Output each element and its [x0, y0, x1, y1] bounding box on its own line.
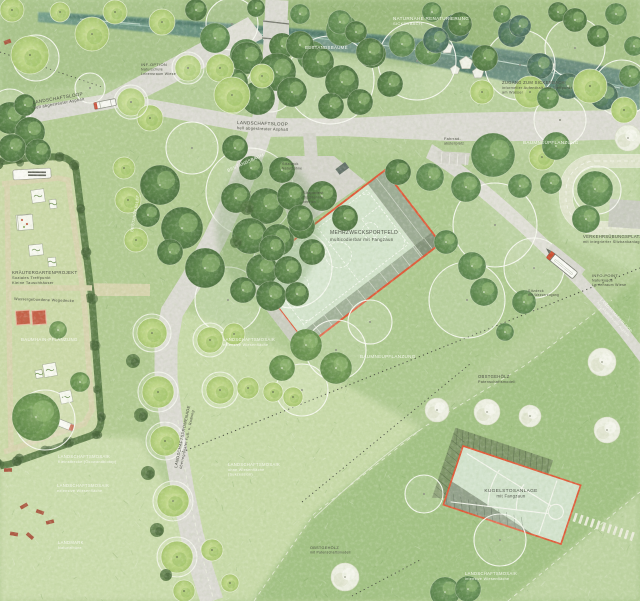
svg-text:Lernenraum Wiese: Lernenraum Wiese [592, 283, 626, 287]
svg-text:Naturkunde: Naturkunde [592, 279, 613, 283]
svg-text:BAUMNEUPFLANZUNG: BAUMNEUPFLANZUNG [360, 354, 416, 359]
svg-text:intensive Wiesenfläche: intensive Wiesenfläche [465, 577, 509, 581]
svg-text:SICKERBACH: SICKERBACH [393, 21, 422, 26]
svg-text:OBSTGEHÖLZ: OBSTGEHÖLZ [478, 374, 510, 379]
svg-text:Sitzdeck: Sitzdeck [282, 162, 299, 166]
svg-text:LANDSCHAFTSMOSAIK: LANDSCHAFTSMOSAIK [465, 571, 517, 576]
svg-text:mit integrierter Sitzbankanlag: mit integrierter Sitzbankanlage [583, 240, 640, 244]
svg-text:LANDSCHAFTSMOSAIK: LANDSCHAFTSMOSAIK [58, 454, 110, 459]
svg-text:Kleinstbecke (Ökowandbiotop): Kleinstbecke (Ökowandbiotop) [58, 460, 116, 464]
svg-text:BAUMNEUPFLANZUNG: BAUMNEUPFLANZUNG [523, 140, 579, 145]
svg-text:Kleine Tauschhäuser: Kleine Tauschhäuser [12, 280, 54, 285]
svg-text:BESTANDSBÄUME: BESTANDSBÄUME [305, 45, 348, 50]
svg-text:MEHRZWECKSPORTFELD: MEHRZWECKSPORTFELD [330, 230, 398, 236]
svg-text:INFO-POINT: INFO-POINT [592, 273, 618, 278]
svg-text:extensive Wiesenfläche: extensive Wiesenfläche [223, 343, 268, 347]
svg-text:informeller Aufenthalt und Tre: informeller Aufenthalt und Treffpunkt [502, 86, 572, 90]
svg-text:Tischtennis-: Tischtennis- [303, 195, 324, 199]
svg-text:ZUGANG ZUM SICKERBACH: ZUGANG ZUM SICKERBACH [502, 80, 565, 85]
svg-text:Fahrrad-: Fahrrad- [444, 137, 461, 141]
svg-text:mit Wasserzugang: mit Wasserzugang [528, 293, 559, 297]
svg-text:abstellplatz: abstellplatz [444, 141, 464, 145]
svg-text:mit Patenschaftsmodell: mit Patenschaftsmodell [310, 550, 351, 554]
svg-text:(Sukzession): (Sukzession) [228, 473, 253, 477]
svg-text:multicodierbar mit Fangzaun: multicodierbar mit Fangzaun [330, 237, 394, 242]
svg-text:Naturtribüne: Naturtribüne [58, 546, 82, 550]
svg-text:bereich: bereich [303, 200, 316, 204]
svg-text:extensive Wiesenfläche: extensive Wiesenfläche [57, 489, 102, 493]
svg-text:LANDSCHAFTSMOSAIK: LANDSCHAFTSMOSAIK [223, 337, 275, 342]
svg-text:am Wasser: am Wasser [502, 91, 524, 95]
svg-text:LANDMARK: LANDMARK [58, 540, 84, 545]
svg-text:Sitzpodest: Sitzpodest [303, 191, 324, 195]
svg-text:VERKEHRSÜBUNGSPLATZ: VERKEHRSÜBUNGSPLATZ [583, 234, 640, 239]
svg-text:ohne Wiesenfläche: ohne Wiesenfläche [228, 468, 264, 472]
svg-text:OBSTGEHÖLZ: OBSTGEHÖLZ [310, 546, 339, 550]
svg-text:mit Fangzaun: mit Fangzaun [497, 494, 526, 499]
svg-text:Naturschule: Naturschule [141, 68, 163, 72]
svg-text:INF-OPTION: INF-OPTION [141, 62, 167, 67]
svg-text:LANDSCHAFTSMOSAIK: LANDSCHAFTSMOSAIK [228, 462, 280, 467]
svg-text:Naturbühne: Naturbühne [282, 166, 302, 170]
svg-text:BAUMHAIN-PFLANZUNG: BAUMHAIN-PFLANZUNG [21, 337, 78, 342]
svg-text:Lebensraum Wiese: Lebensraum Wiese [141, 72, 176, 76]
svg-text:Patenschaftsmodell: Patenschaftsmodell [478, 380, 516, 384]
svg-text:LANDSCHAFTSMOSAIK: LANDSCHAFTSMOSAIK [57, 483, 109, 488]
